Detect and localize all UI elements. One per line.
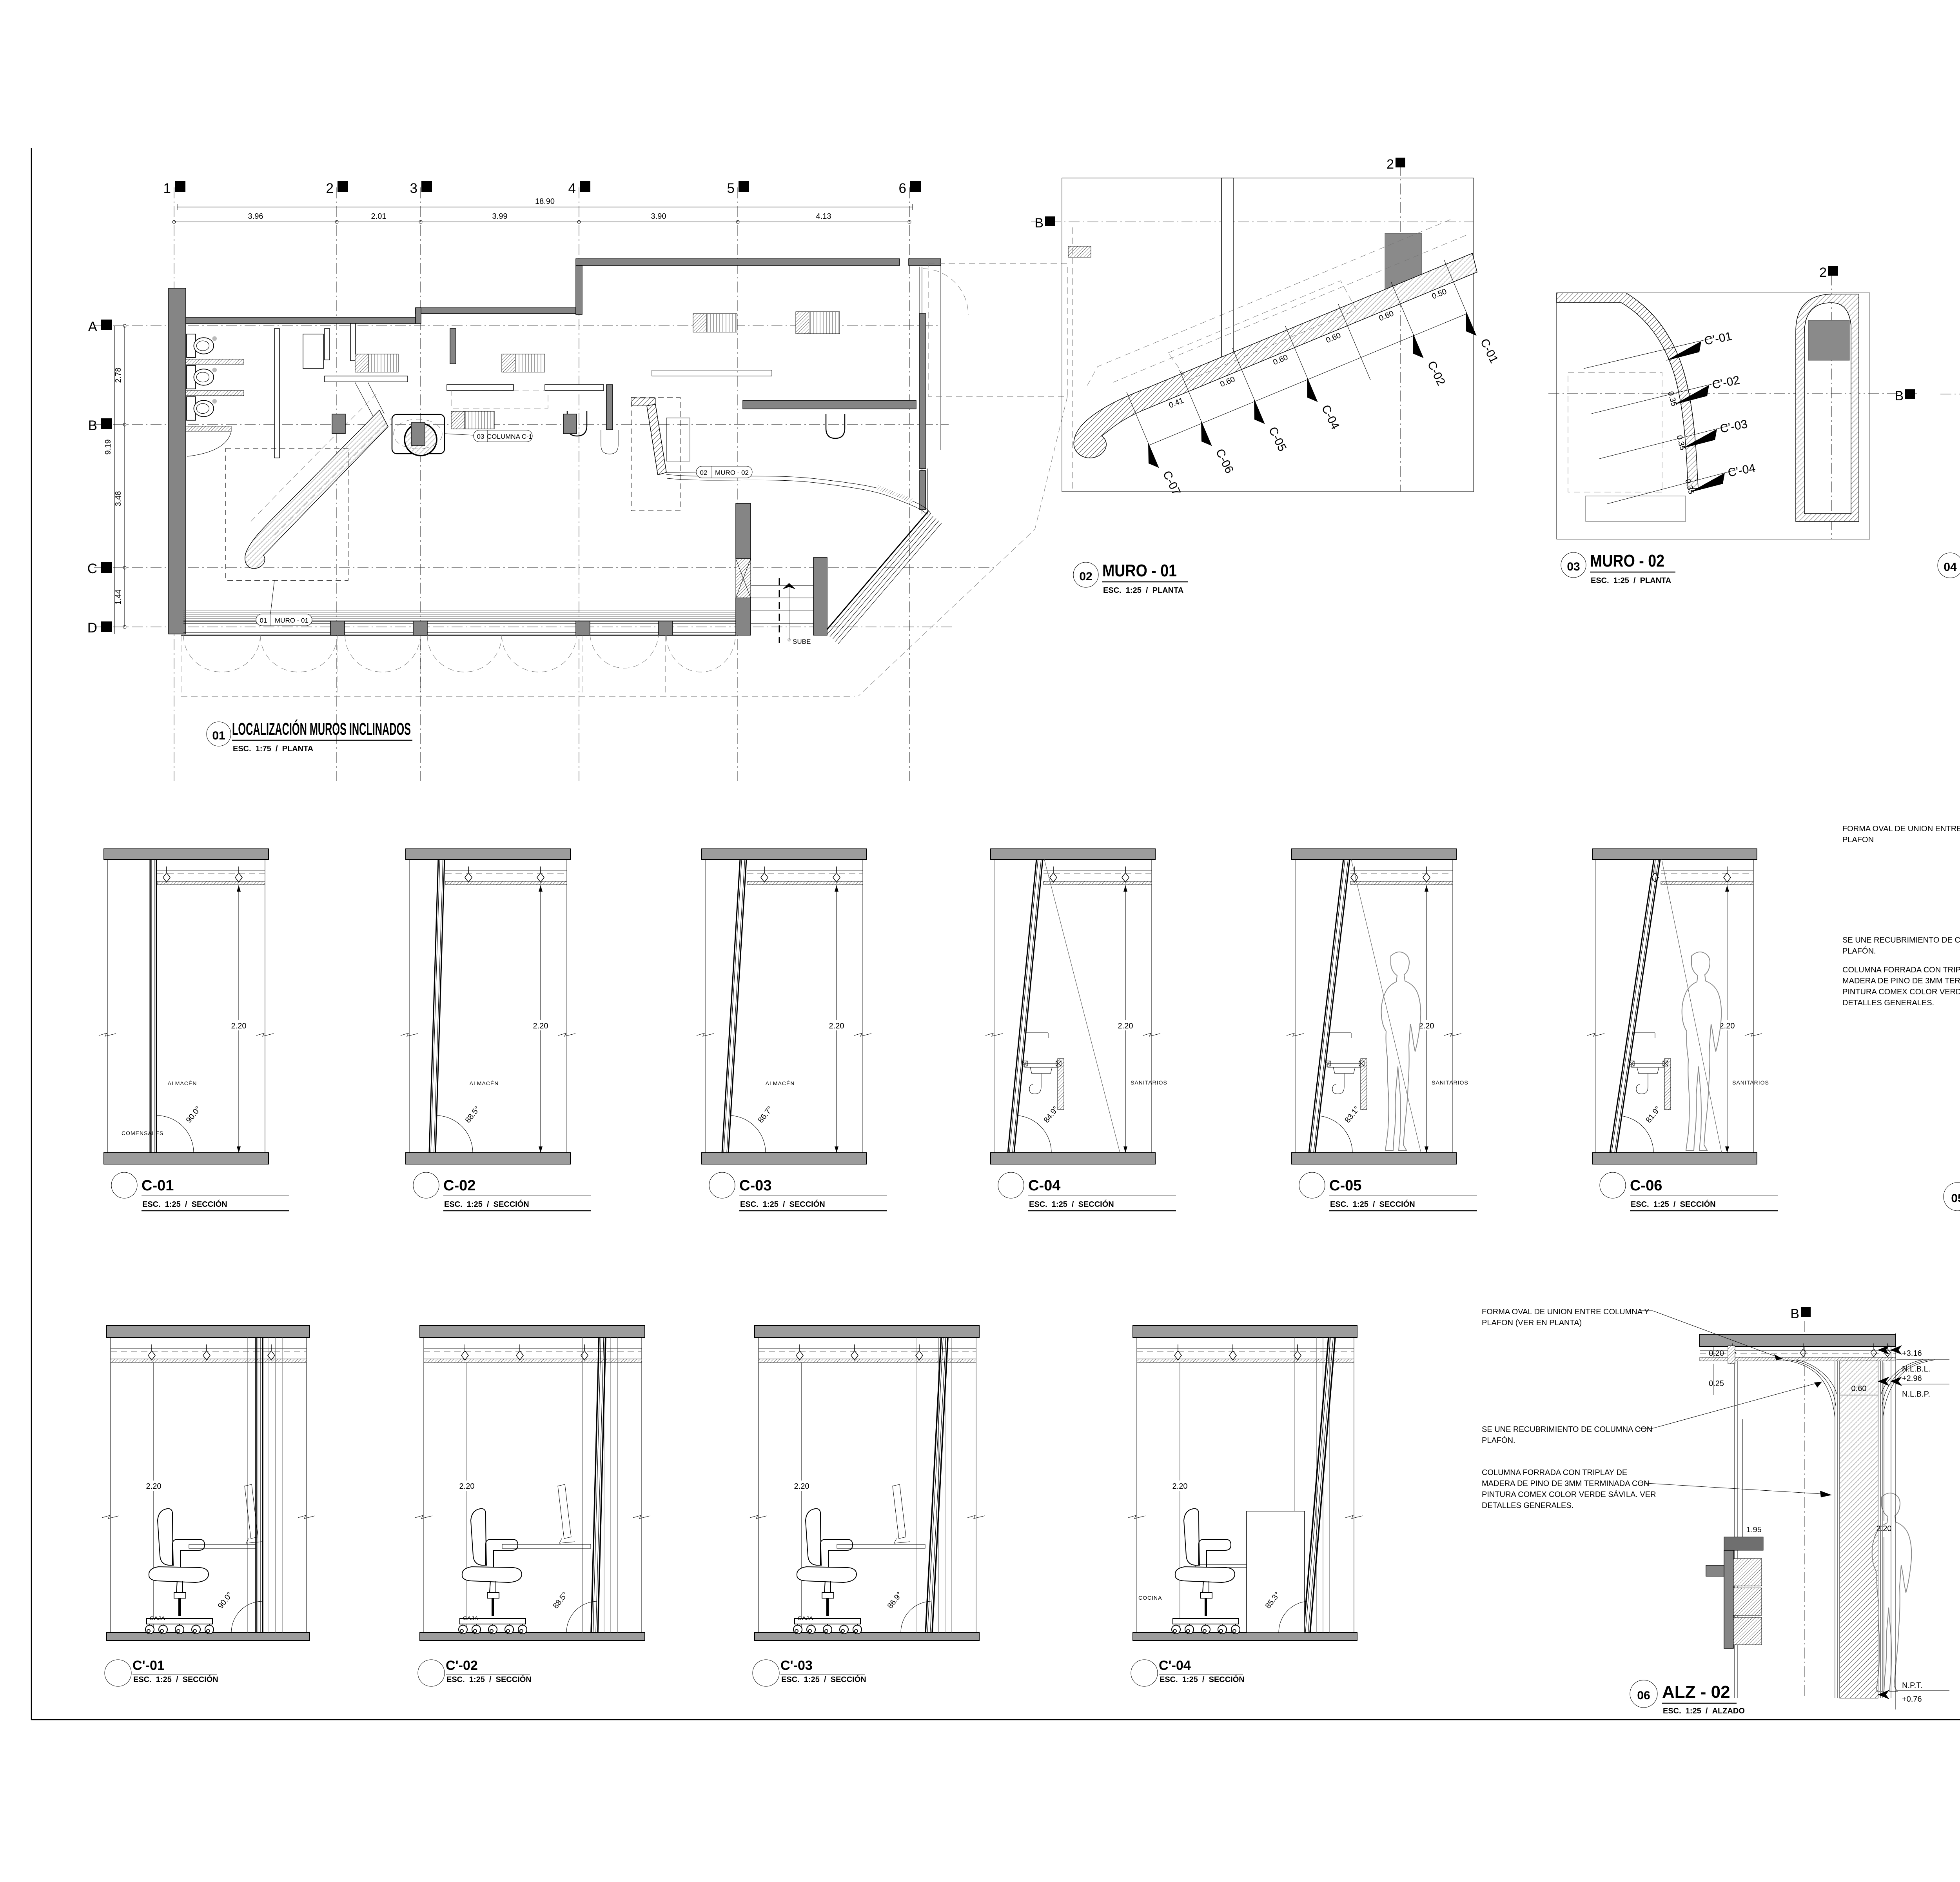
svg-text:PLAFON (VER EN PLANTA): PLAFON (VER EN PLANTA)	[1482, 1319, 1582, 1327]
svg-text:03: 03	[1567, 560, 1580, 573]
svg-text:3.96: 3.96	[248, 212, 263, 221]
svg-text:PINTURA COMEX COLOR VERDE SÁVI: PINTURA COMEX COLOR VERDE SÁVILA. VER	[1842, 987, 1960, 996]
svg-text:C-03: C-03	[739, 1177, 771, 1194]
svg-text:N.P.T.: N.P.T.	[1902, 1681, 1922, 1690]
svg-text:02: 02	[700, 469, 708, 476]
svg-text:C-01: C-01	[142, 1177, 174, 1194]
svg-text:ESC. 1:25 / SECCIÓN: ESC. 1:25 / SECCIÓN	[1631, 1199, 1716, 1209]
svg-text:FORMA OVAL DE UNION ENTRE COLU: FORMA OVAL DE UNION ENTRE COLUMNA Y	[1482, 1308, 1649, 1316]
svg-text:2.20: 2.20	[146, 1482, 162, 1491]
svg-text:2: 2	[326, 181, 334, 196]
svg-text:C-04: C-04	[1028, 1177, 1060, 1194]
svg-text:2.20: 2.20	[459, 1482, 475, 1491]
svg-text:04: 04	[1944, 561, 1957, 574]
svg-text:0.60: 0.60	[1851, 1384, 1867, 1393]
svg-text:ESC. 1:75 / PLANTA: ESC. 1:75 / PLANTA	[233, 745, 313, 753]
svg-text:CAJA: CAJA	[798, 1615, 813, 1621]
svg-text:COLUMNA FORRADA CON TRIPLAY DE: COLUMNA FORRADA CON TRIPLAY DE	[1842, 966, 1960, 974]
svg-text:C-05: C-05	[1329, 1177, 1361, 1194]
svg-text:CAJA: CAJA	[150, 1615, 165, 1621]
svg-text:0.20: 0.20	[1709, 1349, 1724, 1358]
svg-text:SANITARIOS: SANITARIOS	[1732, 1079, 1769, 1086]
svg-text:2.20: 2.20	[1172, 1482, 1188, 1491]
svg-text:COLUMNA C-1: COLUMNA C-1	[487, 433, 532, 440]
svg-text:2.20: 2.20	[794, 1482, 809, 1491]
svg-text:+2.96: +2.96	[1902, 1374, 1922, 1383]
svg-text:B: B	[1895, 389, 1904, 403]
svg-text:C-06: C-06	[1630, 1177, 1662, 1194]
svg-text:02: 02	[1079, 570, 1092, 583]
svg-text:+3.16: +3.16	[1902, 1349, 1922, 1358]
svg-text:4: 4	[568, 181, 576, 196]
svg-text:0.25: 0.25	[1709, 1379, 1724, 1388]
svg-text:03: 03	[477, 433, 485, 440]
svg-text:ESC. 1:25 / PLANTA: ESC. 1:25 / PLANTA	[1103, 586, 1183, 595]
svg-text:01: 01	[212, 729, 225, 742]
svg-text:ESC. 1:25 / SECCIÓN: ESC. 1:25 / SECCIÓN	[1160, 1675, 1245, 1684]
svg-text:ALMACÉN: ALMACÉN	[766, 1080, 795, 1086]
svg-text:2.01: 2.01	[371, 212, 387, 221]
svg-text:1: 1	[163, 181, 171, 196]
svg-text:B: B	[1790, 1306, 1799, 1321]
svg-text:2: 2	[1387, 157, 1394, 172]
svg-text:2.20: 2.20	[231, 1022, 247, 1030]
svg-text:PLAFÓN.: PLAFÓN.	[1482, 1436, 1515, 1445]
svg-text:PLAFÓN.: PLAFÓN.	[1842, 946, 1876, 956]
svg-text:SE UNE RECUBRIMIENTO DE COLUMN: SE UNE RECUBRIMIENTO DE COLUMNA CON	[1842, 936, 1960, 945]
svg-text:COCINA: COCINA	[1138, 1595, 1162, 1601]
svg-text:C'-02: C'-02	[446, 1658, 478, 1673]
svg-text:MURO - 02: MURO - 02	[715, 469, 749, 476]
svg-text:ESC. 1:25 / ALZADO: ESC. 1:25 / ALZADO	[1663, 1707, 1745, 1715]
svg-text:2.20: 2.20	[1118, 1022, 1133, 1030]
svg-text:ESC. 1:25 / SECCIÓN: ESC. 1:25 / SECCIÓN	[781, 1675, 866, 1684]
svg-text:B: B	[88, 418, 97, 433]
svg-text:SANITARIOS: SANITARIOS	[1131, 1079, 1167, 1086]
svg-text:COLUMNA FORRADA CON TRIPLAY DE: COLUMNA FORRADA CON TRIPLAY DE	[1482, 1468, 1627, 1477]
svg-text:+0.76: +0.76	[1902, 1695, 1922, 1704]
svg-text:3.90: 3.90	[651, 212, 666, 221]
svg-text:ESC. 1:25 / SECCIÓN: ESC. 1:25 / SECCIÓN	[133, 1675, 218, 1684]
svg-text:2.78: 2.78	[114, 368, 123, 383]
svg-text:C'-04: C'-04	[1159, 1658, 1191, 1673]
svg-text:PINTURA COMEX COLOR VERDE SÁVI: PINTURA COMEX COLOR VERDE SÁVILA. VER	[1482, 1490, 1656, 1499]
svg-text:CAJA: CAJA	[463, 1615, 479, 1621]
svg-text:ESC. 1:25 / SECCIÓN: ESC. 1:25 / SECCIÓN	[740, 1199, 825, 1209]
svg-text:ESC. 1:25 / SECCIÓN: ESC. 1:25 / SECCIÓN	[1330, 1199, 1415, 1209]
svg-text:A: A	[88, 319, 98, 334]
svg-text:COMENSALES: COMENSALES	[122, 1130, 163, 1136]
svg-text:PLAFON: PLAFON	[1842, 836, 1874, 844]
svg-text:3.48: 3.48	[114, 491, 123, 507]
svg-text:ESC. 1:25 / SECCIÓN: ESC. 1:25 / SECCIÓN	[142, 1199, 227, 1209]
svg-text:N.L.B.P.: N.L.B.P.	[1902, 1390, 1930, 1399]
svg-text:3.99: 3.99	[492, 212, 508, 221]
svg-text:06: 06	[1637, 1689, 1650, 1702]
svg-text:DETALLES GENERALES.: DETALLES GENERALES.	[1482, 1501, 1573, 1510]
svg-text:C-02: C-02	[443, 1177, 475, 1194]
svg-text:2.20: 2.20	[1419, 1022, 1434, 1030]
svg-text:ALMACÉN: ALMACÉN	[470, 1080, 499, 1086]
svg-text:18.90: 18.90	[535, 197, 555, 206]
svg-text:ESC. 1:25 / SECCIÓN: ESC. 1:25 / SECCIÓN	[446, 1675, 532, 1684]
svg-text:2.20: 2.20	[1720, 1022, 1735, 1030]
svg-text:ESC. 1:25 / SECCIÓN: ESC. 1:25 / SECCIÓN	[444, 1199, 529, 1209]
svg-text:DETALLES GENERALES.: DETALLES GENERALES.	[1842, 999, 1934, 1007]
svg-text:B: B	[1034, 216, 1044, 231]
svg-text:LOCALIZACIÓN MUROS INCLINADOS: LOCALIZACIÓN MUROS INCLINADOS	[232, 719, 411, 739]
svg-text:1.44: 1.44	[114, 590, 123, 605]
svg-text:C'-01: C'-01	[132, 1658, 165, 1673]
svg-text:2.20: 2.20	[1877, 1524, 1892, 1533]
svg-text:ESC. 1:25 / PLANTA: ESC. 1:25 / PLANTA	[1591, 576, 1671, 585]
svg-text:D: D	[87, 620, 97, 636]
svg-text:2.20: 2.20	[829, 1022, 844, 1030]
svg-text:ALZ - 02: ALZ - 02	[1662, 1682, 1730, 1702]
svg-text:MURO - 02: MURO - 02	[1590, 551, 1664, 570]
svg-text:3: 3	[410, 181, 417, 196]
svg-text:ALMACÉN: ALMACÉN	[168, 1080, 197, 1086]
svg-text:01: 01	[260, 617, 267, 624]
svg-text:C'-03: C'-03	[780, 1658, 813, 1673]
svg-text:ESC. 1:25 / SECCIÓN: ESC. 1:25 / SECCIÓN	[1029, 1199, 1114, 1209]
svg-text:MURO - 01: MURO - 01	[275, 617, 309, 624]
svg-text:MADERA DE PINO DE 3MM TERMINAD: MADERA DE PINO DE 3MM TERMINADA CON	[1842, 977, 1960, 985]
svg-text:FORMA OVAL DE UNION ENTRE COLU: FORMA OVAL DE UNION ENTRE COLUMNA Y	[1842, 825, 1960, 833]
svg-text:6: 6	[899, 181, 906, 196]
svg-text:2.20: 2.20	[533, 1022, 548, 1030]
svg-text:N.L.B.L.: N.L.B.L.	[1902, 1365, 1930, 1373]
svg-text:5: 5	[727, 181, 735, 196]
svg-text:1.95: 1.95	[1746, 1526, 1762, 1534]
svg-text:MADERA DE PINO DE 3MM TERMINAD: MADERA DE PINO DE 3MM TERMINADA CON	[1482, 1479, 1649, 1488]
svg-text:2: 2	[1819, 265, 1827, 280]
svg-text:4.13: 4.13	[816, 212, 831, 221]
svg-text:MURO - 01: MURO - 01	[1102, 561, 1177, 580]
svg-text:SANITARIOS: SANITARIOS	[1432, 1079, 1468, 1086]
svg-text:SUBE: SUBE	[793, 638, 811, 645]
svg-text:C: C	[87, 561, 97, 576]
svg-text:05: 05	[1951, 1192, 1960, 1205]
svg-text:SE UNE RECUBRIMIENTO DE COLUMN: SE UNE RECUBRIMIENTO DE COLUMNA CON	[1482, 1425, 1652, 1434]
svg-text:9.19: 9.19	[104, 440, 113, 455]
